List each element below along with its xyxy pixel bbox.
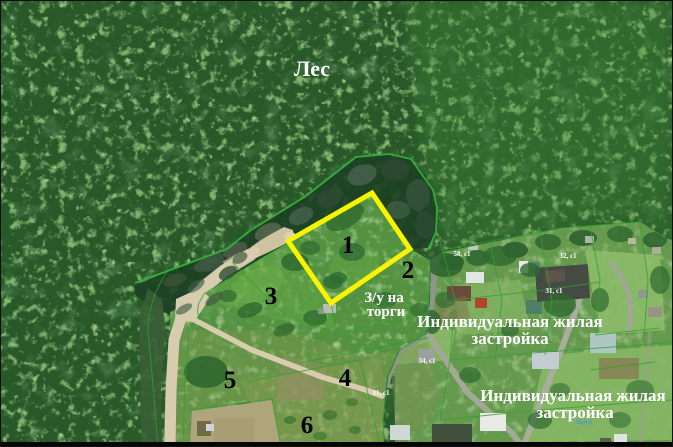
svg-text:торги: торги: [367, 304, 406, 320]
svg-text:3: 3: [265, 283, 278, 310]
svg-text:1: 1: [342, 232, 355, 259]
svg-text:32, с1: 32, с1: [559, 252, 577, 260]
svg-text:31, с1: 31, с1: [545, 287, 563, 295]
svg-text:34, с1: 34, с1: [418, 357, 436, 365]
svg-text:Пруд: Пруд: [576, 418, 592, 426]
svg-text:58, с1: 58, с1: [453, 250, 471, 258]
svg-text:6: 6: [301, 412, 314, 439]
svg-text:5: 5: [224, 367, 237, 394]
svg-text:4: 4: [339, 365, 352, 392]
svg-text:2: 2: [402, 257, 415, 284]
svg-text:31, с1: 31, с1: [372, 389, 390, 397]
svg-text:застройка: застройка: [471, 329, 549, 348]
svg-text:Лес: Лес: [294, 56, 330, 81]
